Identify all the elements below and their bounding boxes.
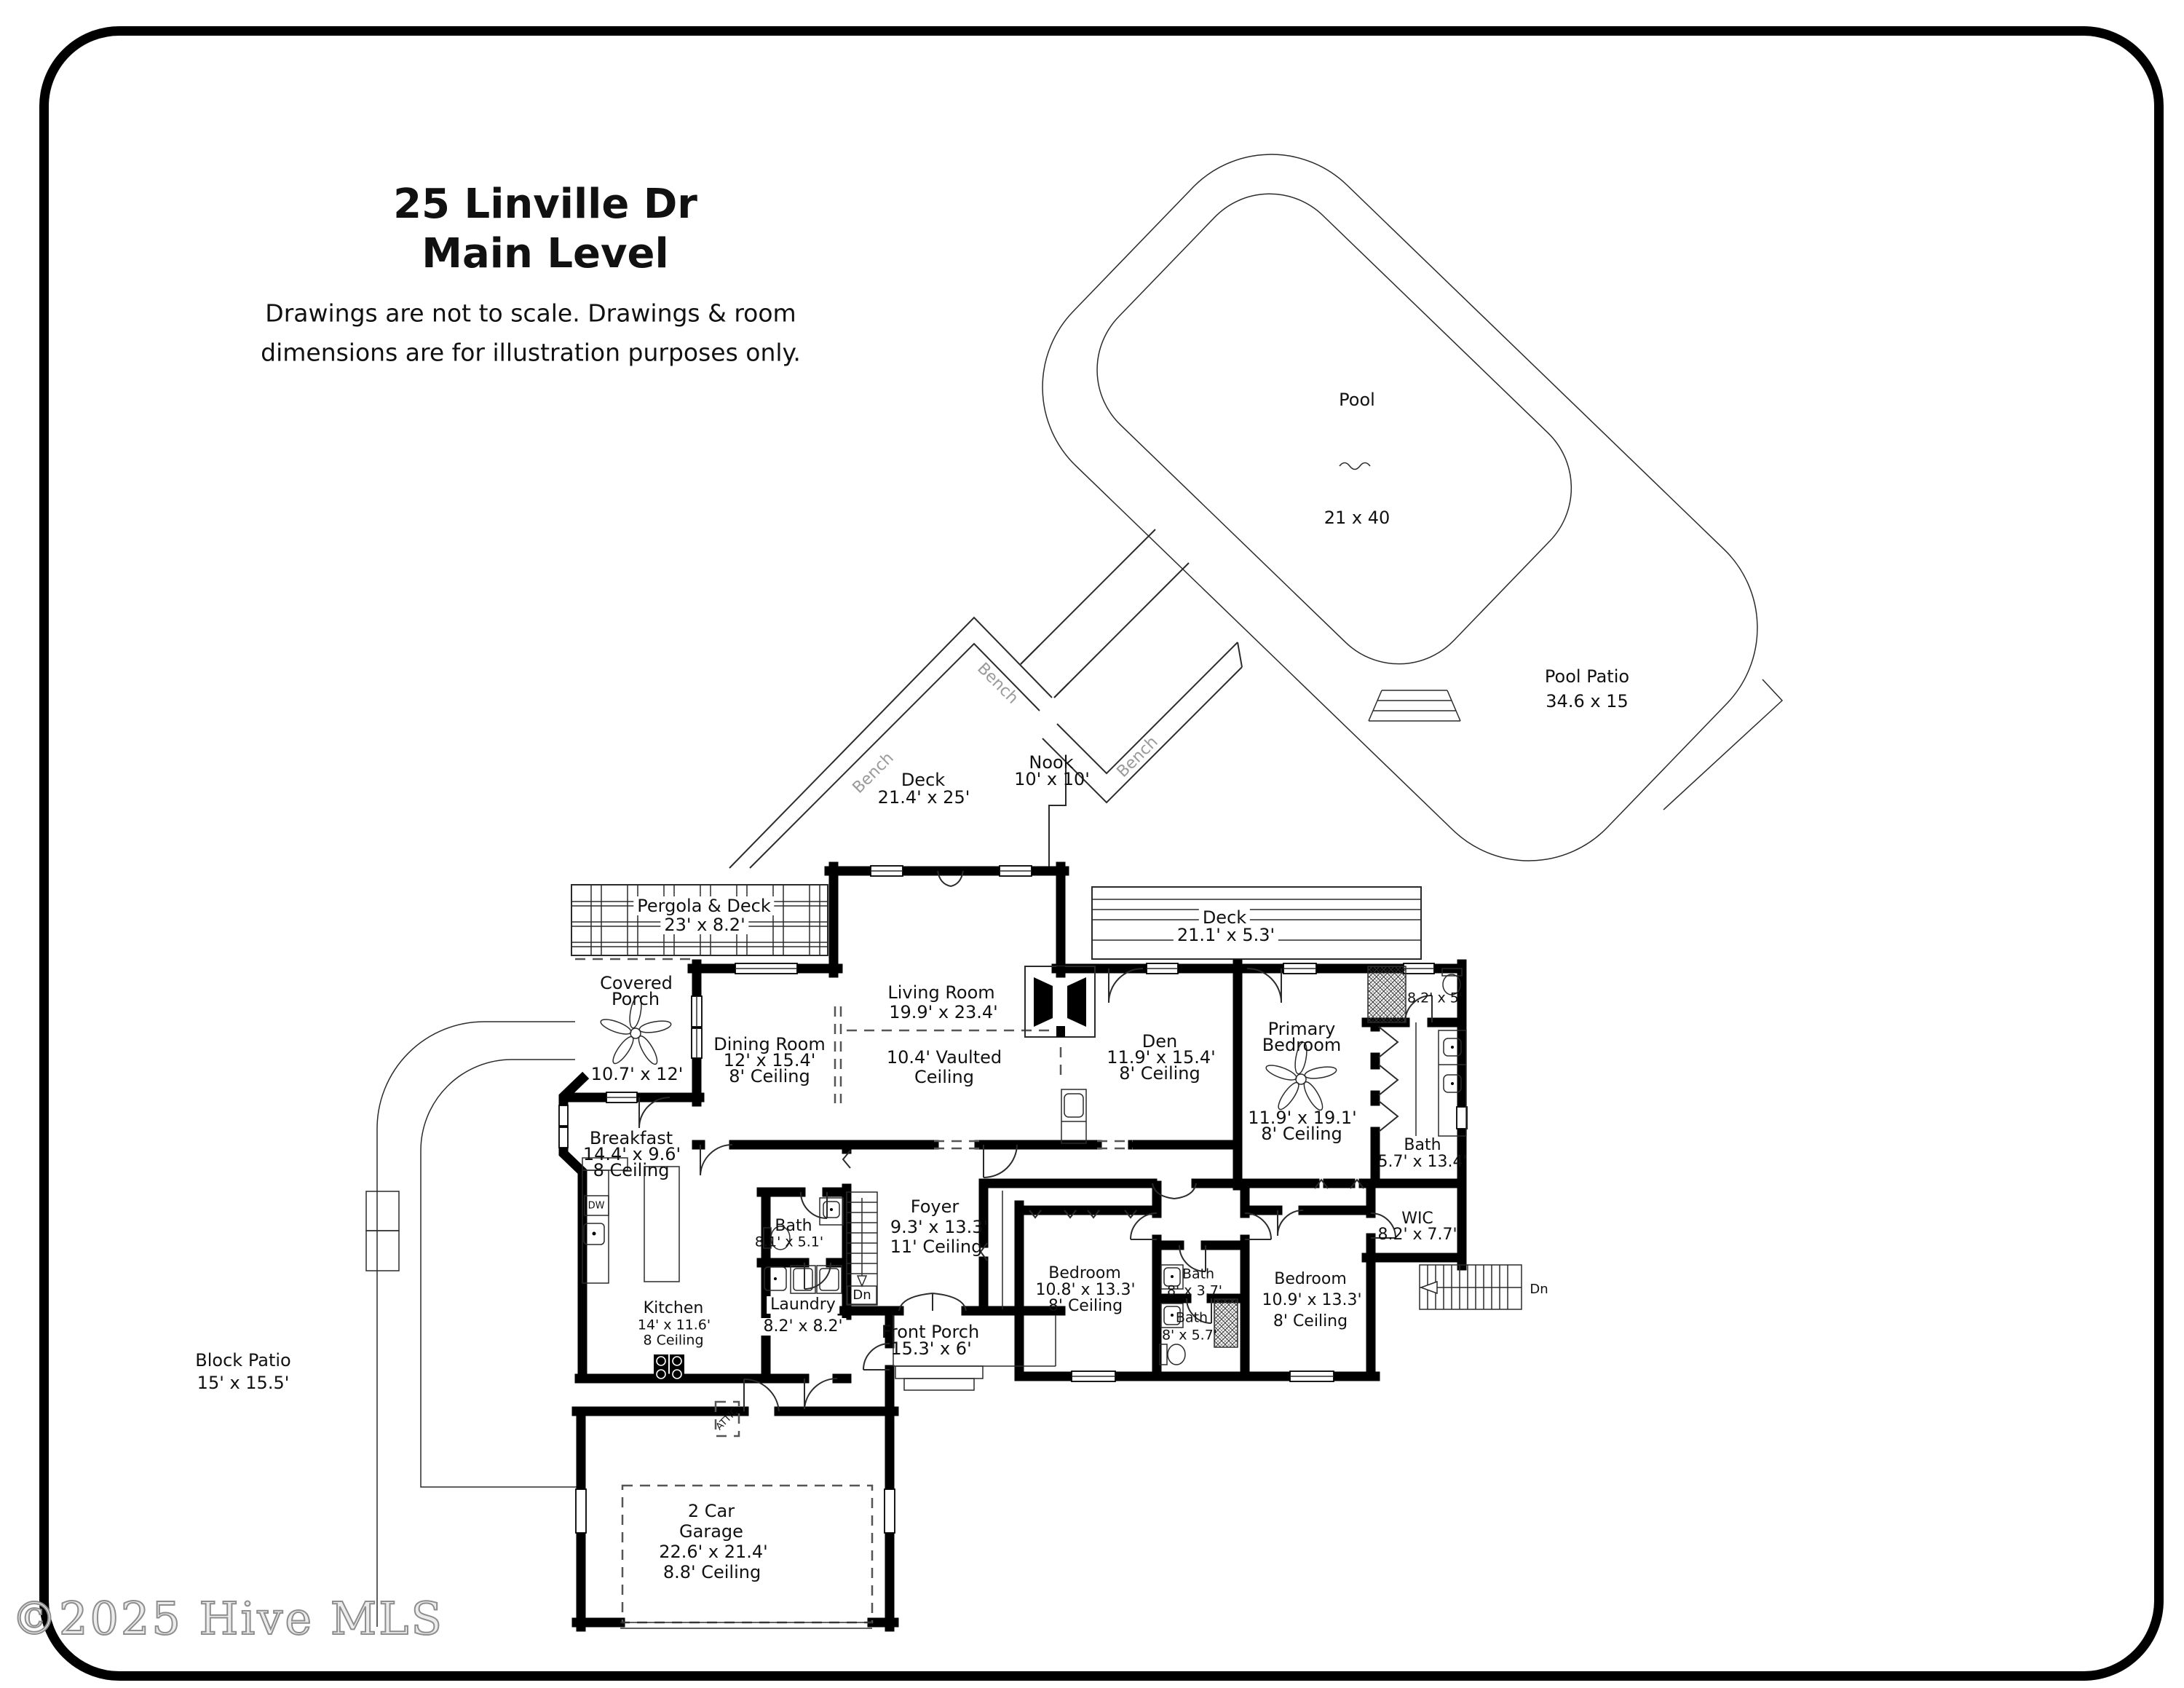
- living-vault1: 10.4' Vaulted: [887, 1049, 1002, 1066]
- floorplan-page: 25 Linville Dr Main Level Drawings are n…: [0, 0, 2184, 1688]
- pool-label: Pool: [1339, 391, 1375, 409]
- bedroom1-label: Bedroom: [1048, 1266, 1121, 1282]
- bath-primary-dims: 5.7' x 13.4': [1377, 1154, 1467, 1170]
- pergola-label: Pergola & Deck: [633, 896, 774, 915]
- block-patio-paths: [366, 1022, 577, 1627]
- laundry-dims: 8.2' x 8.2': [759, 1318, 846, 1336]
- living-dims: 19.9' x 23.4': [889, 1003, 998, 1021]
- stairs-exterior: [1420, 1265, 1522, 1309]
- primary-label2: Bedroom: [1262, 1036, 1342, 1054]
- kitchen-label: Kitchen: [640, 1300, 708, 1317]
- breakfast-ceiling: 8 Ceiling: [593, 1162, 670, 1179]
- page-title-line2: Main Level: [422, 234, 668, 275]
- shower-bath2: [1214, 1299, 1238, 1347]
- garage-label2: Garage: [679, 1523, 743, 1540]
- block-patio-dims: 15' x 15.5': [197, 1374, 290, 1392]
- den-ceiling: 8' Ceiling: [1119, 1065, 1200, 1082]
- front-porch-dims: 15.3' x 6': [890, 1340, 971, 1357]
- bath-hall-label: Bath: [775, 1218, 812, 1234]
- page-title-line1: 25 Linville Dr: [393, 184, 697, 225]
- pool-patio-label: Pool Patio: [1545, 668, 1629, 685]
- bedroom2-label: Bedroom: [1274, 1271, 1347, 1287]
- covered-porch-label2: Porch: [612, 990, 660, 1008]
- floorplan-drawing: [0, 0, 2184, 1688]
- living-vault2: Ceiling: [914, 1068, 974, 1086]
- garage-label1: 2 Car: [688, 1502, 735, 1520]
- foyer-ceiling: 11' Ceiling: [890, 1238, 983, 1255]
- disclaimer-line1: Drawings are not to scale. Drawings & ro…: [265, 301, 796, 326]
- shower-primary: [1368, 966, 1406, 1022]
- bedroom2-dims: 10.9' x 13.3': [1262, 1293, 1361, 1309]
- deck-right-structure: [1092, 887, 1421, 959]
- bath-primary-label: Bath: [1404, 1137, 1441, 1153]
- bedroom2-ceiling: 8' Ceiling: [1273, 1314, 1348, 1330]
- bath-hall-dims: 8.1' x 5.1': [755, 1236, 823, 1250]
- bath1-dims: 8' x 3.7': [1167, 1285, 1222, 1298]
- wc-dims: 8.2' x 5': [1407, 992, 1463, 1006]
- pool-area: [997, 109, 1803, 906]
- primary-ceiling: 8' Ceiling: [1261, 1125, 1342, 1143]
- disclaimer-line2: dimensions are for illustration purposes…: [261, 341, 801, 365]
- foyer-dims: 9.3' x 13.3': [890, 1218, 988, 1236]
- laundry-label: Laundry: [767, 1296, 839, 1314]
- toilet-bath2: [1168, 1344, 1185, 1365]
- dn-label-exterior: Dn: [1530, 1283, 1548, 1296]
- nook-dims: 10' x 10': [1014, 770, 1090, 788]
- garage-ceiling: 8.8' Ceiling: [663, 1563, 761, 1581]
- pool-patio-notch: [1663, 679, 1782, 810]
- living-label: Living Room: [887, 984, 994, 1001]
- wic-label: WIC: [1401, 1211, 1433, 1227]
- kitchen-island: [644, 1167, 679, 1282]
- bath2-dims: 8' x 5.7': [1162, 1329, 1217, 1343]
- dw-label: DW: [588, 1202, 605, 1211]
- block-patio-label: Block Patio: [195, 1352, 290, 1369]
- deck-main-dims: 21.4' x 25': [878, 789, 970, 806]
- bedroom1-dims: 10.8' x 13.3': [1035, 1282, 1135, 1298]
- kitchen-ceiling: 8 Ceiling: [639, 1333, 707, 1349]
- foyer-label: Foyer: [911, 1198, 959, 1215]
- deck-main-label: Deck: [901, 771, 945, 789]
- dn-label-foyer: Dn: [852, 1289, 871, 1302]
- kitchen-dims: 14' x 11.6': [634, 1318, 714, 1333]
- water-icon: [1340, 463, 1370, 470]
- wic-dims: 8.2' x 7.7': [1377, 1227, 1457, 1243]
- pergola-dims: 23' x 8.2': [660, 915, 748, 934]
- bedroom1-ceiling: 8' Ceiling: [1048, 1298, 1123, 1314]
- covered-porch-dims: 10.7' x 12': [591, 1065, 684, 1083]
- deck-right-dims: 21.1' x 5.3': [1174, 926, 1278, 944]
- pool-steps: [1369, 690, 1460, 721]
- deck-bench-structures: [729, 529, 1242, 871]
- fireplace: [1025, 966, 1095, 1037]
- watermark: ©2025 Hive MLS: [12, 1592, 444, 1645]
- dining-ceiling: 8' Ceiling: [729, 1068, 810, 1085]
- pool-patio-dims: 34.6 x 15: [1546, 693, 1628, 710]
- garage-dims: 22.6' x 21.4': [659, 1543, 768, 1561]
- bath2-label: Bath: [1176, 1312, 1208, 1325]
- pool-dims: 21 x 40: [1324, 509, 1390, 526]
- bath1-label: Bath: [1182, 1268, 1214, 1282]
